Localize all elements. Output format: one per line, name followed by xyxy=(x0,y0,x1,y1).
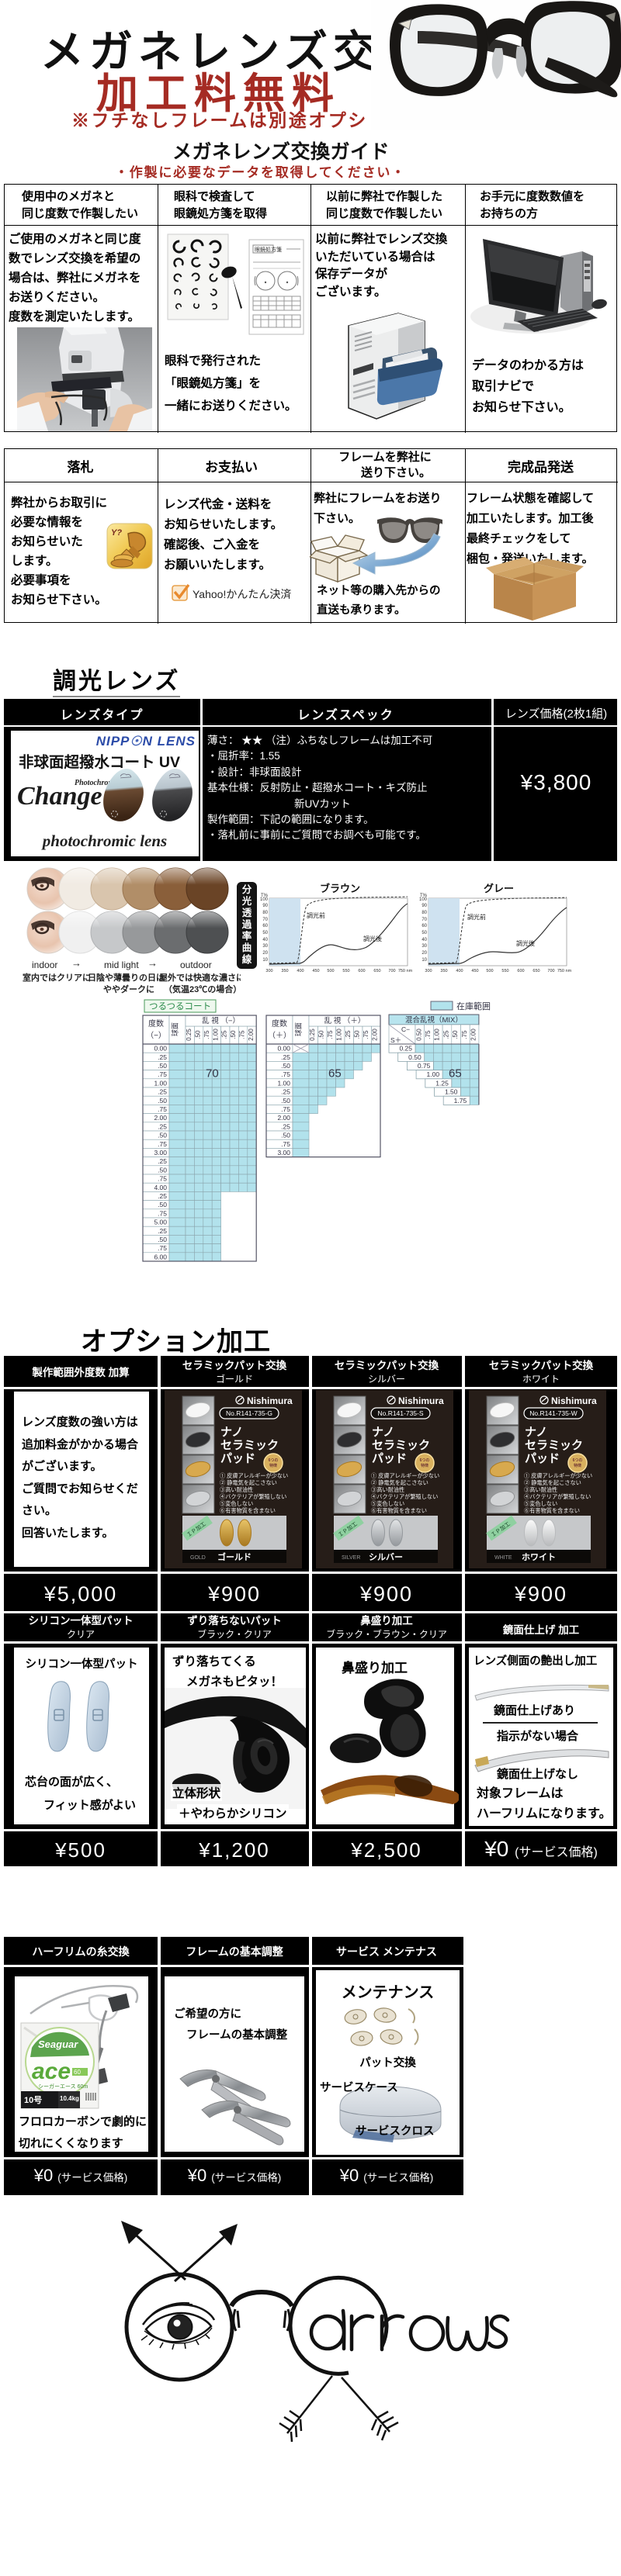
svg-text:350: 350 xyxy=(281,969,288,973)
svg-text:③高い耐油性: ③高い耐油性 xyxy=(524,1486,557,1493)
svg-text:1.00: 1.00 xyxy=(427,1070,440,1078)
svg-text:パッド: パッド xyxy=(220,1452,255,1465)
svg-text:曲: 曲 xyxy=(242,942,252,953)
svg-text:550: 550 xyxy=(342,969,349,973)
svg-text:4.00: 4.00 xyxy=(154,1184,167,1191)
svg-text:3.00: 3.00 xyxy=(154,1149,167,1157)
svg-text:1.50: 1.50 xyxy=(445,1088,458,1096)
svg-text:.50: .50 xyxy=(195,1030,202,1039)
svg-text:1.75: 1.75 xyxy=(454,1097,467,1105)
svg-text:調光前: 調光前 xyxy=(467,913,486,921)
svg-text:indoor: indoor xyxy=(32,960,57,970)
svg-text:ナノ: ナノ xyxy=(525,1426,547,1439)
svg-text:0.00: 0.00 xyxy=(154,1045,167,1053)
svg-text:.25: .25 xyxy=(281,1088,290,1096)
svg-text:C−: C− xyxy=(401,1025,410,1033)
svg-text:No.R141-735-S: No.R141-735-S xyxy=(377,1409,423,1417)
svg-text:分: 分 xyxy=(242,883,252,895)
svg-text:① 皮膚アレルギーが少ない: ① 皮膚アレルギーが少ない xyxy=(220,1472,288,1479)
svg-text:10: 10 xyxy=(422,958,427,963)
svg-text:.25: .25 xyxy=(345,1030,352,1039)
svg-text:30: 30 xyxy=(422,944,427,949)
svg-text:.25: .25 xyxy=(221,1030,228,1039)
svg-text:Y?: Y? xyxy=(111,528,122,538)
svg-text:.75: .75 xyxy=(158,1105,167,1113)
svg-text:乱 視 （−）: 乱 視 （−） xyxy=(202,1016,240,1025)
svg-text:0.25: 0.25 xyxy=(309,1029,316,1041)
svg-text:率: 率 xyxy=(242,930,252,942)
svg-text:750 nm: 750 nm xyxy=(557,969,572,973)
svg-text:400: 400 xyxy=(297,969,304,973)
svg-text:.50: .50 xyxy=(281,1132,290,1139)
svg-text:.75: .75 xyxy=(158,1209,167,1217)
svg-text:.75: .75 xyxy=(158,1175,167,1183)
svg-text:Nishimura: Nishimura xyxy=(398,1395,444,1406)
svg-text:S＋: S＋ xyxy=(390,1036,401,1044)
svg-text:0.00: 0.00 xyxy=(277,1045,290,1053)
svg-text:65: 65 xyxy=(449,1067,462,1080)
svg-text:調光後: 調光後 xyxy=(363,935,382,942)
svg-text:600: 600 xyxy=(358,969,365,973)
svg-text:80: 80 xyxy=(262,911,268,915)
svg-text:特徴: 特徴 xyxy=(574,1463,581,1468)
svg-text:パッド: パッド xyxy=(372,1452,407,1465)
svg-text:450: 450 xyxy=(312,969,319,973)
svg-text:Seaguar: Seaguar xyxy=(38,2038,78,2050)
svg-text:.25: .25 xyxy=(281,1053,290,1061)
svg-text:セラミック: セラミック xyxy=(220,1439,279,1452)
svg-text:6.00: 6.00 xyxy=(154,1253,167,1260)
svg-text:GOLD: GOLD xyxy=(190,1555,206,1561)
svg-text:60: 60 xyxy=(262,924,268,928)
svg-text:50: 50 xyxy=(422,931,427,935)
svg-text:Nishimura: Nishimura xyxy=(247,1395,293,1406)
svg-text:70: 70 xyxy=(206,1067,219,1080)
svg-text:.25: .25 xyxy=(158,1192,167,1200)
svg-text:③高い耐油性: ③高い耐油性 xyxy=(371,1486,404,1493)
svg-text:3.00: 3.00 xyxy=(277,1149,290,1157)
svg-text:⑥有害物質を含まない: ⑥有害物質を含まない xyxy=(371,1507,427,1514)
svg-text:④バクテリアが繁殖しない: ④バクテリアが繁殖しない xyxy=(524,1493,591,1500)
svg-text:球面: 球面 xyxy=(171,1022,179,1036)
svg-text:.25: .25 xyxy=(158,1088,167,1096)
svg-text:③高い耐油性: ③高い耐油性 xyxy=(220,1486,253,1493)
svg-text:outdoor: outdoor xyxy=(180,960,212,970)
svg-text:20: 20 xyxy=(422,951,427,956)
svg-text:パッド: パッド xyxy=(525,1452,560,1465)
svg-text:乱 視 （＋）: 乱 視 （＋） xyxy=(324,1016,366,1025)
svg-text:650: 650 xyxy=(373,969,380,973)
svg-text:650: 650 xyxy=(533,969,539,973)
svg-text:550: 550 xyxy=(501,969,508,973)
svg-text:.50: .50 xyxy=(281,1062,290,1070)
svg-text:特徴: 特徴 xyxy=(269,1463,277,1468)
svg-text:ブラウン: ブラウン xyxy=(320,883,360,894)
svg-text:.25: .25 xyxy=(158,1053,167,1061)
svg-text:（＋）: （＋） xyxy=(268,1031,291,1040)
svg-text:度数: 度数 xyxy=(148,1018,164,1029)
svg-text:500: 500 xyxy=(486,969,493,973)
svg-text:.50: .50 xyxy=(158,1132,167,1139)
svg-text:.50: .50 xyxy=(158,1166,167,1174)
svg-text:80: 80 xyxy=(422,911,427,915)
svg-text:6つの: 6つの xyxy=(269,1458,279,1463)
svg-text:.75: .75 xyxy=(281,1070,290,1078)
svg-text:混合乱視（MIX）: 混合乱視（MIX） xyxy=(405,1015,463,1025)
svg-text:70: 70 xyxy=(422,918,427,922)
svg-text:① 皮膚アレルギーが少ない: ① 皮膚アレルギーが少ない xyxy=(524,1472,592,1479)
svg-text:.75: .75 xyxy=(239,1030,246,1039)
svg-text:2.00: 2.00 xyxy=(248,1029,255,1041)
svg-text:シーガーエース 60m: シーガーエース 60m xyxy=(38,2083,88,2090)
svg-text:90: 90 xyxy=(262,904,268,908)
svg-text:10.4kg: 10.4kg xyxy=(60,2095,79,2102)
svg-text:WHITE: WHITE xyxy=(494,1555,512,1561)
svg-text:1.00: 1.00 xyxy=(154,1079,167,1087)
svg-text:.50: .50 xyxy=(354,1030,361,1039)
svg-text:60: 60 xyxy=(422,924,427,928)
svg-text:セラミック: セラミック xyxy=(372,1439,430,1452)
svg-text:光: 光 xyxy=(241,895,252,907)
svg-text:ナノ: ナノ xyxy=(220,1426,243,1439)
svg-text:50: 50 xyxy=(262,931,268,935)
svg-text:6つの: 6つの xyxy=(573,1458,583,1463)
svg-text:2.00: 2.00 xyxy=(372,1029,379,1041)
svg-text:450: 450 xyxy=(471,969,478,973)
svg-text:.75: .75 xyxy=(363,1030,369,1039)
svg-text:.75: .75 xyxy=(158,1244,167,1252)
svg-text:No.R141-735-W: No.R141-735-W xyxy=(529,1409,577,1417)
svg-text:No.R141-735-G: No.R141-735-G xyxy=(226,1409,272,1417)
svg-text:⑥有害物質を含まない: ⑥有害物質を含まない xyxy=(524,1507,580,1514)
svg-text:400: 400 xyxy=(456,969,463,973)
svg-text:30: 30 xyxy=(262,944,268,949)
svg-text:セラミック: セラミック xyxy=(525,1439,583,1452)
svg-text:40: 40 xyxy=(422,938,427,942)
svg-text:.50: .50 xyxy=(230,1030,237,1039)
svg-text:350: 350 xyxy=(440,969,447,973)
svg-text:② 静電気を起こさない: ② 静電気を起こさない xyxy=(524,1479,581,1486)
svg-text:ややダークに: ややダークに xyxy=(103,984,154,994)
svg-text:.75: .75 xyxy=(158,1140,167,1148)
svg-text:.50: .50 xyxy=(158,1201,167,1208)
svg-text:④バクテリアが繁殖しない: ④バクテリアが繁殖しない xyxy=(220,1493,286,1500)
svg-text:度数: 度数 xyxy=(272,1018,287,1029)
svg-text:SILVER: SILVER xyxy=(342,1555,360,1561)
svg-text:10号: 10号 xyxy=(24,2095,42,2105)
svg-text:40: 40 xyxy=(262,938,268,942)
svg-text:750 nm: 750 nm xyxy=(398,969,413,973)
svg-text:300: 300 xyxy=(425,969,432,973)
svg-text:.75: .75 xyxy=(281,1140,290,1148)
svg-text:70: 70 xyxy=(262,918,268,922)
svg-text:700: 700 xyxy=(547,969,554,973)
svg-text:線: 線 xyxy=(242,953,252,965)
svg-text:調光後: 調光後 xyxy=(516,939,535,947)
svg-text:5.00: 5.00 xyxy=(154,1219,167,1226)
svg-text:シルバー: シルバー xyxy=(369,1552,403,1562)
svg-text:⑤変色しない: ⑤変色しない xyxy=(220,1500,253,1507)
svg-text:.75: .75 xyxy=(281,1105,290,1113)
svg-text:室内ではクリアに: 室内ではクリアに xyxy=(23,972,91,983)
svg-text:.25: .25 xyxy=(158,1227,167,1235)
svg-text:100: 100 xyxy=(419,897,428,902)
svg-text:過: 過 xyxy=(241,918,252,930)
svg-text:⑥有害物質を含まない: ⑥有害物質を含まない xyxy=(220,1507,276,1514)
svg-text:.50: .50 xyxy=(452,1030,459,1039)
svg-text:球面: 球面 xyxy=(294,1022,303,1036)
svg-text:（−）: （−） xyxy=(146,1031,166,1040)
svg-text:2.00: 2.00 xyxy=(154,1114,167,1122)
svg-text:0.25: 0.25 xyxy=(399,1045,412,1053)
svg-text:ナノ: ナノ xyxy=(372,1426,394,1439)
svg-text:500: 500 xyxy=(327,969,334,973)
svg-text:ゴールド: ゴールド xyxy=(217,1551,252,1562)
svg-text:グレー: グレー xyxy=(484,883,514,894)
svg-text:.50: .50 xyxy=(318,1030,325,1039)
svg-text:700: 700 xyxy=(388,969,395,973)
svg-text:④バクテリアが繁殖しない: ④バクテリアが繁殖しない xyxy=(371,1493,438,1500)
svg-text:2.00: 2.00 xyxy=(470,1029,477,1041)
svg-text:.75: .75 xyxy=(203,1030,210,1039)
svg-text:0.25: 0.25 xyxy=(186,1029,193,1041)
svg-text:.50: .50 xyxy=(281,1097,290,1105)
svg-text:.25: .25 xyxy=(281,1122,290,1130)
svg-text:65: 65 xyxy=(328,1067,342,1080)
svg-text:ace: ace xyxy=(32,2059,71,2084)
svg-text:→: → xyxy=(71,957,82,969)
svg-text:.75: .75 xyxy=(461,1030,468,1039)
svg-text:90: 90 xyxy=(422,904,427,908)
svg-text:⑤変色しない: ⑤変色しない xyxy=(524,1500,557,1507)
svg-text:眼鏡処方箋: 眼鏡処方箋 xyxy=(255,246,282,253)
svg-text:② 静電気を起こさない: ② 静電気を起こさない xyxy=(220,1479,277,1486)
svg-text:0.50: 0.50 xyxy=(415,1029,422,1041)
svg-text:.25: .25 xyxy=(158,1157,167,1165)
svg-text:2.00: 2.00 xyxy=(277,1114,290,1122)
svg-text:Nishimura: Nishimura xyxy=(551,1395,597,1406)
svg-text:⑤変色しない: ⑤変色しない xyxy=(371,1500,404,1507)
svg-text:在庫範囲: 在庫範囲 xyxy=(456,1001,491,1011)
svg-text:→: → xyxy=(147,957,158,969)
svg-text:.75: .75 xyxy=(425,1030,432,1039)
svg-text:調光前: 調光前 xyxy=(307,911,325,919)
svg-text:1.00: 1.00 xyxy=(277,1079,290,1087)
svg-text:6つの: 6つの xyxy=(420,1458,430,1463)
svg-text:600: 600 xyxy=(517,969,524,973)
svg-text:.25: .25 xyxy=(442,1030,449,1039)
svg-text:屋外では快適な濃さに: 屋外では快適な濃さに xyxy=(159,972,241,983)
svg-text:1.25: 1.25 xyxy=(435,1079,449,1087)
svg-text:① 皮膚アレルギーが少ない: ① 皮膚アレルギーが少ない xyxy=(371,1472,439,1479)
svg-text:1.00: 1.00 xyxy=(336,1029,343,1041)
svg-text:透: 透 xyxy=(242,908,252,918)
svg-text:.50: .50 xyxy=(158,1097,167,1105)
svg-text:ホワイト: ホワイト xyxy=(522,1552,556,1562)
svg-text:.75: .75 xyxy=(158,1070,167,1078)
svg-text:.75: .75 xyxy=(327,1030,334,1039)
svg-text:つるつるコート: つるつるコート xyxy=(149,1002,211,1011)
svg-text:300: 300 xyxy=(265,969,272,973)
svg-text:0.50: 0.50 xyxy=(408,1053,422,1061)
svg-text:.50: .50 xyxy=(158,1236,167,1243)
svg-text:mid light: mid light xyxy=(104,960,139,970)
svg-text:② 静電気を起こさない: ② 静電気を起こさない xyxy=(371,1479,428,1486)
svg-text:100: 100 xyxy=(260,897,269,902)
svg-text:1.00: 1.00 xyxy=(212,1029,219,1041)
svg-text:0.75: 0.75 xyxy=(418,1062,431,1070)
svg-text:.25: .25 xyxy=(158,1122,167,1130)
svg-text:10: 10 xyxy=(262,958,268,963)
svg-text:（気温23℃の場合）: （気温23℃の場合） xyxy=(164,984,241,994)
svg-text:.50: .50 xyxy=(158,1062,167,1070)
svg-text:特徴: 特徴 xyxy=(421,1463,428,1468)
svg-text:1.00: 1.00 xyxy=(434,1029,441,1041)
svg-text:20: 20 xyxy=(262,951,268,956)
svg-text:60: 60 xyxy=(74,2069,81,2076)
svg-text:日陰や薄曇りの日は: 日陰や薄曇りの日は xyxy=(88,972,165,983)
